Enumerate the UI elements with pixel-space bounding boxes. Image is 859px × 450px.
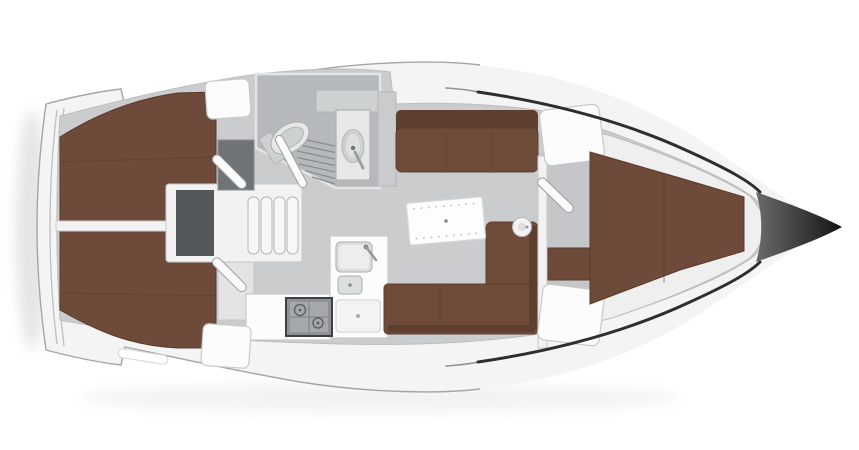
basin-drain [351, 146, 355, 150]
companionway [166, 184, 302, 262]
deck-hatch-starboard [201, 323, 252, 368]
wardrobe [548, 248, 596, 280]
head-side-locker [378, 92, 396, 186]
galley-drawer [336, 300, 380, 332]
companionway-step [287, 197, 298, 254]
washbasin-vanity [336, 110, 370, 180]
companionway-step [248, 197, 259, 254]
port-settee [396, 110, 538, 172]
companionway-step [274, 197, 285, 254]
deck-hatch-port [205, 79, 252, 120]
heater-unit [513, 218, 532, 237]
settee-backrest [388, 325, 534, 332]
galley-sink [336, 242, 376, 272]
head-shelf [316, 90, 378, 112]
companionway-step [261, 197, 272, 254]
saloon-table [406, 197, 485, 245]
galley-stove [286, 298, 332, 336]
galley-small-sink [338, 276, 362, 294]
boat-floor-plan [0, 0, 859, 450]
bow-anchor-locker [756, 192, 842, 262]
engine-compartment [176, 190, 214, 256]
floor-plan-canvas [0, 0, 859, 450]
settee-backrest [529, 226, 537, 330]
